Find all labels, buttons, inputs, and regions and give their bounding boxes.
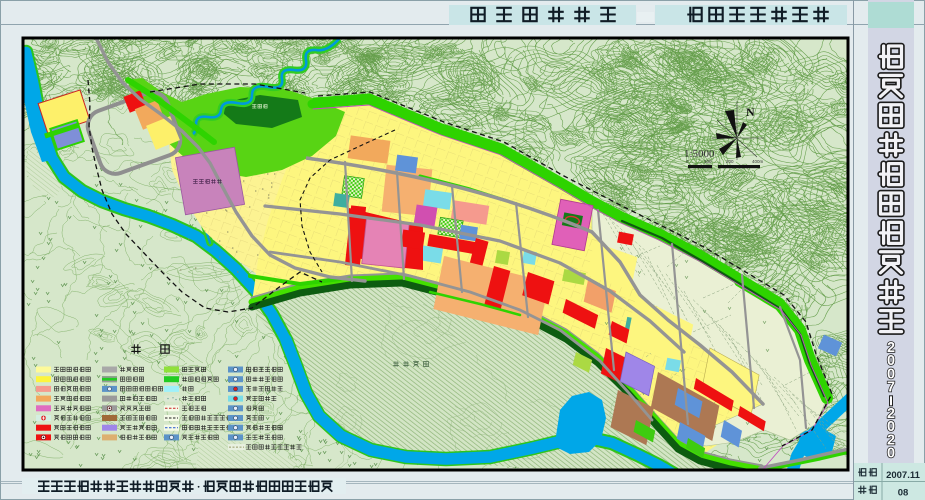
svg-text:400m: 400m [752,159,764,164]
svg-text:N: N [746,105,755,119]
svg-text:08: 08 [898,488,909,499]
svg-text:200: 200 [726,159,734,164]
svg-text:7: 7 [887,380,895,396]
svg-text:100: 100 [704,159,712,164]
svg-text:2007.11: 2007.11 [886,470,921,481]
svg-text:0: 0 [887,446,895,462]
